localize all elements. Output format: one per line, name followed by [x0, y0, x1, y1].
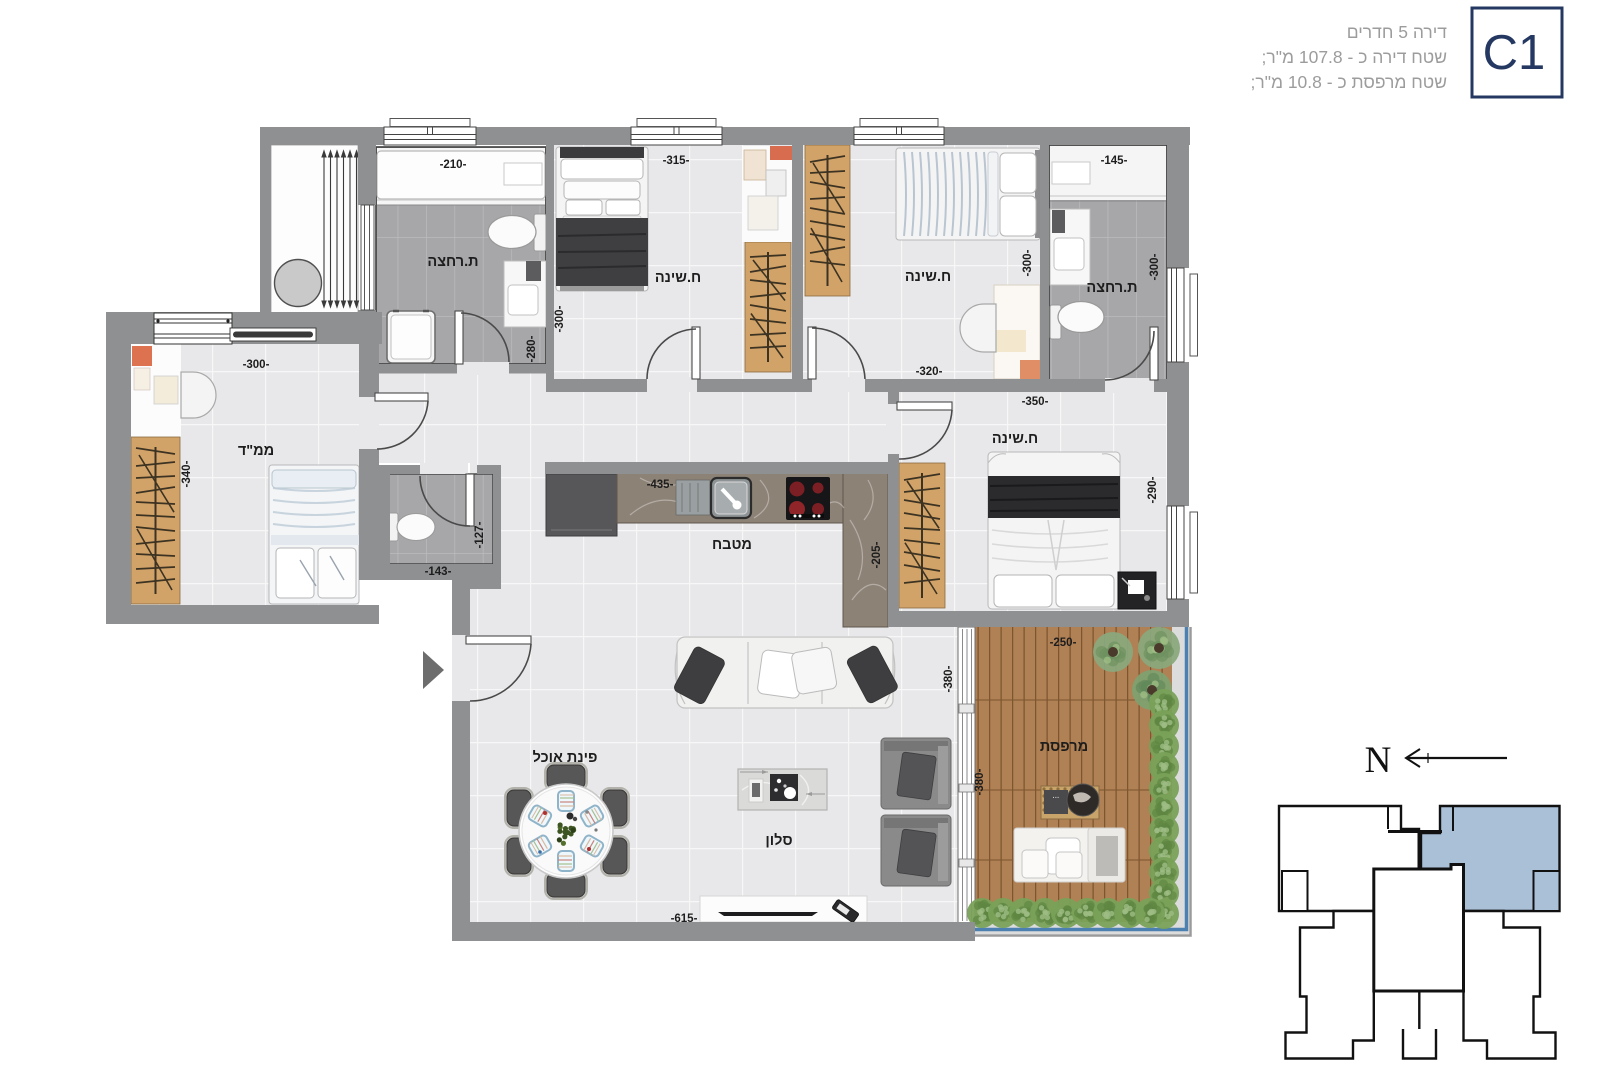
svg-text:מטבח: מטבח: [712, 537, 752, 553]
svg-text:···: ···: [1053, 795, 1060, 802]
svg-text:-380-: -380-: [943, 665, 955, 692]
svg-text:ח.שינה: ח.שינה: [992, 431, 1038, 447]
svg-text:שטח מרפסת כ - 10.8 מ"ר;: שטח מרפסת כ - 10.8 מ"ר;: [1251, 72, 1448, 92]
svg-text:-300-: -300-: [554, 305, 566, 332]
svg-text:-290-: -290-: [1147, 476, 1159, 503]
svg-text:מרפסת: מרפסת: [1040, 739, 1088, 755]
svg-text:-280-: -280-: [526, 335, 538, 362]
svg-text:-127-: -127-: [474, 521, 486, 548]
svg-text:-320-: -320-: [916, 366, 943, 378]
svg-text:ח.שינה: ח.שינה: [655, 270, 701, 286]
svg-text:פינת אוכל: פינת אוכל: [533, 750, 598, 766]
svg-text:-350-: -350-: [1022, 396, 1049, 408]
svg-text:-205-: -205-: [871, 541, 883, 568]
svg-text:-300-: -300-: [1022, 249, 1034, 276]
svg-text:-210-: -210-: [440, 159, 467, 171]
svg-text:שטח דירה כ - 107.8 מ"ר;: שטח דירה כ - 107.8 מ"ר;: [1262, 47, 1448, 67]
svg-text:ת.רחצה: ת.רחצה: [427, 254, 478, 270]
svg-text:סלון: סלון: [765, 833, 792, 849]
svg-text:-145-: -145-: [1101, 155, 1128, 167]
svg-text:-435-: -435-: [647, 479, 674, 491]
svg-text:ת.רחצה: ת.רחצה: [1086, 280, 1137, 296]
svg-text:-315-: -315-: [663, 155, 690, 167]
svg-text:-300-: -300-: [243, 359, 270, 371]
svg-text:-380-: -380-: [974, 768, 986, 795]
svg-text:-615-: -615-: [671, 913, 698, 925]
svg-text:-250-: -250-: [1050, 637, 1077, 649]
svg-text:ח.שינה: ח.שינה: [905, 269, 951, 285]
svg-text:-300-: -300-: [1149, 253, 1161, 280]
svg-text:C1: C1: [1483, 26, 1546, 80]
svg-text:N: N: [1365, 740, 1392, 781]
svg-text:ממ"ד: ממ"ד: [238, 443, 274, 459]
svg-text:דירה 5 חדרים: דירה 5 חדרים: [1347, 22, 1448, 42]
svg-text:-143-: -143-: [425, 566, 452, 578]
svg-text:-340-: -340-: [181, 460, 193, 487]
